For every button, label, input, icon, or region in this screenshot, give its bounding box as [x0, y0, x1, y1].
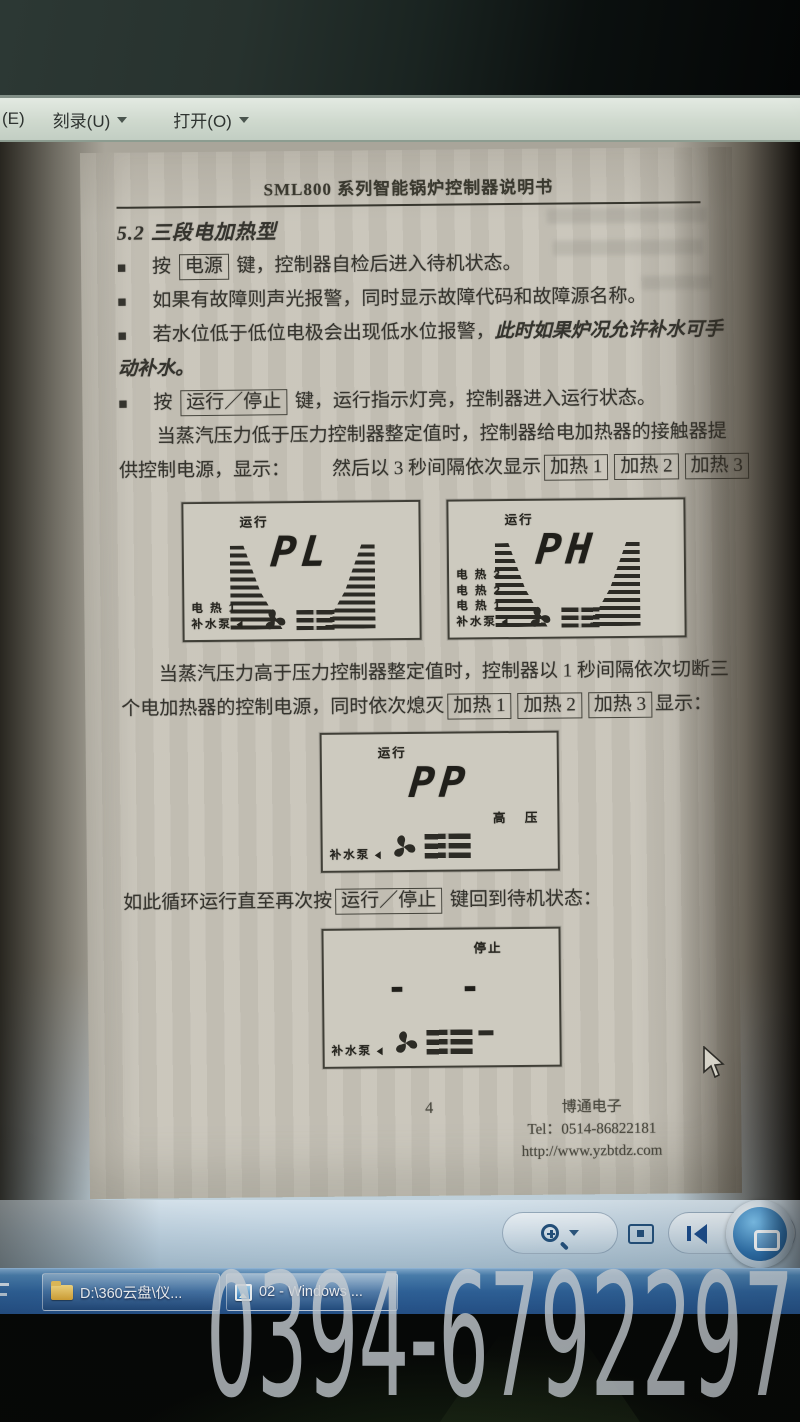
feed-pump-label: 补水泵 [456, 615, 497, 631]
pump-stripes-icon [296, 610, 334, 630]
chevron-down-icon [569, 1230, 579, 1236]
paragraph2-line2: 个电加热器的控制电源，同时依次熄灭加热 1加热 2加热 3显示： [121, 687, 705, 727]
run-stop-key-box: 运行／停止 [335, 888, 442, 915]
menu-item-burn[interactable]: 刻录(U) [47, 103, 134, 136]
document-page: SML800 系列智能锅炉控制器说明书 5.2 三段电加热型 ■按 电源 键，控… [80, 147, 742, 1199]
company-url: http://www.yzbtdz.com [484, 1139, 699, 1163]
paragraph1-line2a: 供控制电源，显示： [119, 459, 290, 482]
bullet-square-icon: ■ [117, 297, 130, 310]
lcd-status-label: 停止 [474, 937, 503, 956]
photographed-monitor: (E) 刻录(U) 打开(O) SML800 系列智能锅炉控制器说明书 5.2 … [0, 0, 800, 1422]
heat3-key-box: 加热 3 [684, 453, 749, 480]
page-number: 4 [425, 1100, 433, 1118]
fan-icon [389, 832, 419, 862]
lcd-main-reading: - - [324, 967, 559, 1009]
feed-pump-label: 补水泵 [191, 617, 232, 633]
bullet1-pre: 按 [152, 256, 176, 277]
bullet3-text: 若水位低于低位电极会出现低水位报警， [153, 321, 495, 345]
heat2-key-box: 加热 2 [517, 692, 582, 719]
bullet-square-icon: ■ [117, 263, 130, 276]
viewer-canvas: SML800 系列智能锅炉控制器说明书 5.2 三段电加热型 ■按 电源 键，控… [0, 142, 800, 1200]
bullet4-pre: 按 [153, 392, 177, 413]
fan-icon [260, 606, 288, 634]
menu-item-open-label: 打开(O) [173, 107, 232, 132]
fan-icon [525, 604, 553, 632]
heater3-label: 电 热 3 [456, 568, 502, 584]
heat1-key-box: 加热 1 [544, 454, 609, 481]
pump-arrow-icon [236, 621, 242, 629]
lcd-display-stop: 停止 - - 补水泵 [321, 927, 561, 1069]
company-name: 博通电子 [484, 1095, 699, 1119]
pump-stripes-icon [478, 1030, 493, 1036]
taskbar-button-folder[interactable]: D:\360云盘\仪... [42, 1273, 220, 1311]
lcd-main-reading: PP [320, 757, 560, 808]
bullet-continuation: 动补水。 [118, 347, 702, 387]
bullet-square-icon: ■ [118, 331, 131, 344]
bullet-item: ■按 运行／停止 键，运行指示灯亮，控制器进入运行状态。 [118, 381, 702, 421]
lcd-labels: 补水泵 [332, 1044, 383, 1060]
bullet1-post: 键，控制器自检后进入待机状态。 [232, 253, 522, 277]
taskbar-edge-icon[interactable] [0, 1279, 10, 1303]
monitor-top-bezel [0, 0, 800, 98]
paragraph1-line2: 供控制电源，显示：然后以 3 秒间隔依次显示加热 1加热 2加热 3 [119, 449, 703, 489]
pump-arrow-icon [501, 618, 507, 626]
feed-pump-label: 补水泵 [330, 848, 371, 864]
paragraph2-line1: 当蒸汽压力高于压力控制器整定值时，控制器以 1 秒间隔依次切断三 [121, 653, 705, 693]
lcd-main-reading: PH [446, 523, 686, 574]
menu-item-burn-label: 刻录(U) [53, 107, 111, 132]
lcd-labels: 电 热 3 电 热 2 电 热 1 补水泵 [456, 568, 507, 630]
bullet-item: ■如果有故障则声光报警，同时显示故障代码和故障源名称。 [117, 279, 701, 319]
paragraph1-line2b: 然后以 3 秒间隔依次显示 [332, 457, 541, 480]
heater2-label: 电 热 2 [456, 584, 502, 600]
lcd-display-pl: 运行 PL 电 热 1 补水泵 [181, 500, 421, 642]
bullet4-post: 键，运行指示灯亮，控制器进入运行状态。 [290, 388, 656, 413]
bullet-item: ■若水位低于低位电极会出现低水位报警，此时如果炉况允许补水可手 [118, 313, 702, 353]
watermark-text: 0394-6792297 [206, 1252, 794, 1422]
heat1-key-box: 加热 1 [447, 693, 512, 720]
bullet-square-icon: ■ [118, 399, 131, 412]
paragraph1-line1: 当蒸汽压力低于压力控制器整定值时，控制器给电加热器的接触器提 [119, 415, 703, 455]
pump-arrow-icon [376, 1048, 382, 1056]
company-block: 博通电子 Tel：0514-86822181 http://www.yzbtdz… [484, 1095, 700, 1163]
viewer-menu-bar: (E) 刻录(U) 打开(O) [0, 98, 800, 142]
heater1-label: 电 热 1 [191, 602, 237, 618]
pump-arrow-icon [374, 852, 380, 860]
page-footer: 4 博通电子 Tel：0514-86822181 http://www.yzbt… [125, 1095, 710, 1171]
bleed-smudge [547, 207, 707, 224]
feed-pump-label: 补水泵 [332, 1044, 373, 1060]
heater1-label: 电 热 1 [456, 599, 502, 615]
company-tel: Tel：0514-86822181 [484, 1117, 699, 1141]
bullet2-text: 如果有故障则声光报警，同时显示故障代码和故障源名称。 [152, 286, 646, 312]
run-stop-key-box: 运行／停止 [180, 389, 287, 416]
lcd-figure-row: 运行 PL 电 热 1 补水泵 [181, 497, 704, 642]
bleed-smudge [641, 275, 711, 290]
lcd-labels: 电 热 1 补水泵 [191, 602, 242, 633]
heat3-key-box: 加热 3 [588, 692, 653, 719]
heat2-key-box: 加热 2 [614, 453, 679, 480]
pump-stripes-icon [426, 1029, 472, 1055]
paragraph3-post: 键回到待机状态： [445, 888, 602, 911]
menu-item-open[interactable]: 打开(O) [167, 103, 255, 136]
lcd-display-pp: 运行 PP 高 压 补水泵 [320, 731, 560, 873]
bullet3-italic-wrap: 动补水。 [118, 358, 194, 380]
chevron-down-icon [239, 117, 249, 123]
chevron-down-icon [117, 117, 127, 123]
lcd-main-reading: PL [181, 526, 421, 577]
high-pressure-label: 高 压 [493, 807, 546, 827]
lcd-figure-single: 停止 - - 补水泵 [321, 925, 708, 1069]
pump-stripes-icon [561, 607, 599, 627]
bleed-smudge [553, 239, 703, 255]
paragraph3-pre: 如此循环运行直至再次按 [123, 891, 332, 914]
bullet-list: ■按 电源 键，控制器自检后进入待机状态。 ■如果有故障则声光报警，同时显示故障… [117, 245, 703, 421]
paragraph2-line2b: 显示： [655, 693, 712, 715]
document-header-title: SML800 系列智能锅炉控制器说明书 [116, 171, 700, 202]
taskbar-button-label: D:\360云盘\仪... [80, 1282, 182, 1303]
power-key-box: 电源 [179, 254, 229, 280]
fan-icon [390, 1028, 420, 1058]
lcd-labels: 补水泵 [330, 848, 381, 864]
folder-icon [51, 1285, 73, 1300]
paragraph3: 如此循环运行直至再次按运行／停止 键回到待机状态： [123, 881, 707, 921]
bullet3-italic: 此时如果炉况允许补水可手 [495, 319, 723, 342]
paragraph2-line2a: 个电加热器的控制电源，同时依次熄灭 [121, 696, 444, 720]
lcd-figure-single: 运行 PP 高 压 补水泵 [320, 729, 707, 873]
pump-stripes-icon [425, 833, 471, 859]
mouse-cursor-icon [702, 1046, 726, 1080]
lcd-display-ph: 运行 PH 电 热 3 电 热 2 电 热 1 补水泵 [446, 497, 686, 639]
menu-item-partial[interactable]: (E) [0, 105, 31, 133]
